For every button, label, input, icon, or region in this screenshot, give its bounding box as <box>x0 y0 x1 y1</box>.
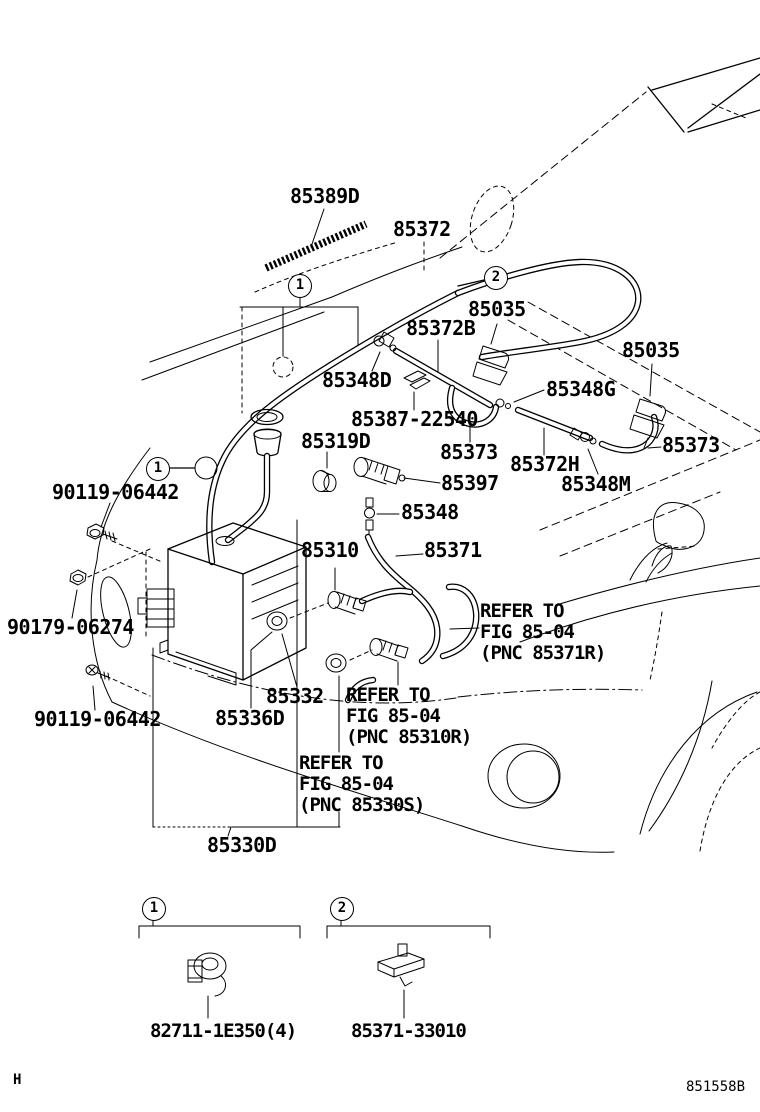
callout-2-top: 2 <box>484 266 508 290</box>
part-label-85310: 85310 <box>301 541 359 559</box>
part-label-90119-06442-lower: 90119-06442 <box>34 710 161 728</box>
refer-line: REFER TO <box>346 685 471 706</box>
hose-85371r-drawing <box>443 587 479 656</box>
part-label-85373-left: 85373 <box>440 443 498 461</box>
drawing-code: 851558B <box>686 1079 745 1095</box>
refer-line: (PNC 85371R) <box>480 643 605 664</box>
refer-line: FIG 85-04 <box>299 774 424 795</box>
refer-line: (PNC 85310R) <box>346 727 471 748</box>
part-label-85319d: 85319D <box>301 432 370 450</box>
screw-90119-lower-drawing <box>86 665 150 710</box>
part-label-85348g: 85348G <box>546 380 615 398</box>
refer-line: FIG 85-04 <box>480 622 605 643</box>
refer-line: FIG 85-04 <box>346 706 471 727</box>
part-label-90179-06274: 90179-06274 <box>7 618 134 636</box>
legend-callout-1: 1 <box>142 897 166 921</box>
tube-85372h-drawing <box>518 410 590 455</box>
pump-upper-drawing <box>328 568 366 614</box>
grommet-85319d-drawing <box>313 452 336 492</box>
legend-clip1-drawing <box>139 919 300 1018</box>
refer-block-85371r: REFER TO FIG 85-04 (PNC 85371R) <box>480 601 605 664</box>
legend2-part-number: 85371-33010 <box>351 1020 466 1042</box>
footer-left-mark: H <box>13 1072 21 1088</box>
part-label-85372h: 85372H <box>510 455 579 473</box>
refer-line: REFER TO <box>480 601 605 622</box>
callout-1-top: 1 <box>288 274 312 298</box>
legend-clip2-drawing <box>327 919 490 1018</box>
hose-small-upper-drawing <box>362 591 410 601</box>
part-label-85348m: 85348M <box>561 475 630 493</box>
joint-85348g-drawing <box>496 390 544 409</box>
part-label-85372: 85372 <box>393 220 451 238</box>
clamp-85387-drawing <box>404 371 430 410</box>
joint-85348-drawing <box>365 498 400 536</box>
grommet-85330s-drawing <box>326 650 372 672</box>
part-label-85372b: 85372B <box>406 319 475 337</box>
callout-1-tank: 1 <box>146 457 170 481</box>
washer-reservoir-drawing <box>138 523 306 685</box>
refer-block-85330s: REFER TO FIG 85-04 (PNC 85330S) <box>299 753 424 816</box>
tube-85372b-drawing <box>396 340 490 405</box>
refer-line: (PNC 85330S) <box>299 795 424 816</box>
legend-callout-2: 2 <box>330 897 354 921</box>
part-label-85397: 85397 <box>441 474 499 492</box>
part-label-85348: 85348 <box>401 503 459 521</box>
part-label-85332: 85332 <box>266 687 324 705</box>
refer-line: REFER TO <box>299 753 424 774</box>
part-label-85387-22540: 85387-22540 <box>351 410 478 428</box>
part-label-85373-right: 85373 <box>662 436 720 454</box>
coil-hose-85389d-drawing <box>266 209 366 268</box>
pump-85397-drawing <box>354 458 440 485</box>
washer-nozzle-right-drawing <box>630 364 666 448</box>
refer-block-85310r: REFER TO FIG 85-04 (PNC 85310R) <box>346 685 471 748</box>
callout1-clamp-circle <box>169 457 217 479</box>
part-label-85371: 85371 <box>424 541 482 559</box>
part-label-85330d: 85330D <box>207 836 276 854</box>
part-label-85035-left: 85035 <box>468 300 526 318</box>
part-label-90119-06442-upper: 90119-06442 <box>52 483 179 501</box>
part-label-85336d: 85336D <box>215 709 284 727</box>
diagram-line-art <box>0 0 760 1112</box>
parts-diagram-washer-system: 85389D 85372 85035 85372B 85348D 85035 8… <box>0 0 760 1112</box>
part-label-85389d: 85389D <box>290 187 359 205</box>
elbow-85348d-drawing <box>372 332 396 371</box>
pump-lower-drawing <box>370 639 408 686</box>
legend1-part-number: 82711-1E350(4) <box>150 1020 296 1042</box>
part-label-85035-right: 85035 <box>622 341 680 359</box>
part-label-85348d: 85348D <box>322 371 391 389</box>
